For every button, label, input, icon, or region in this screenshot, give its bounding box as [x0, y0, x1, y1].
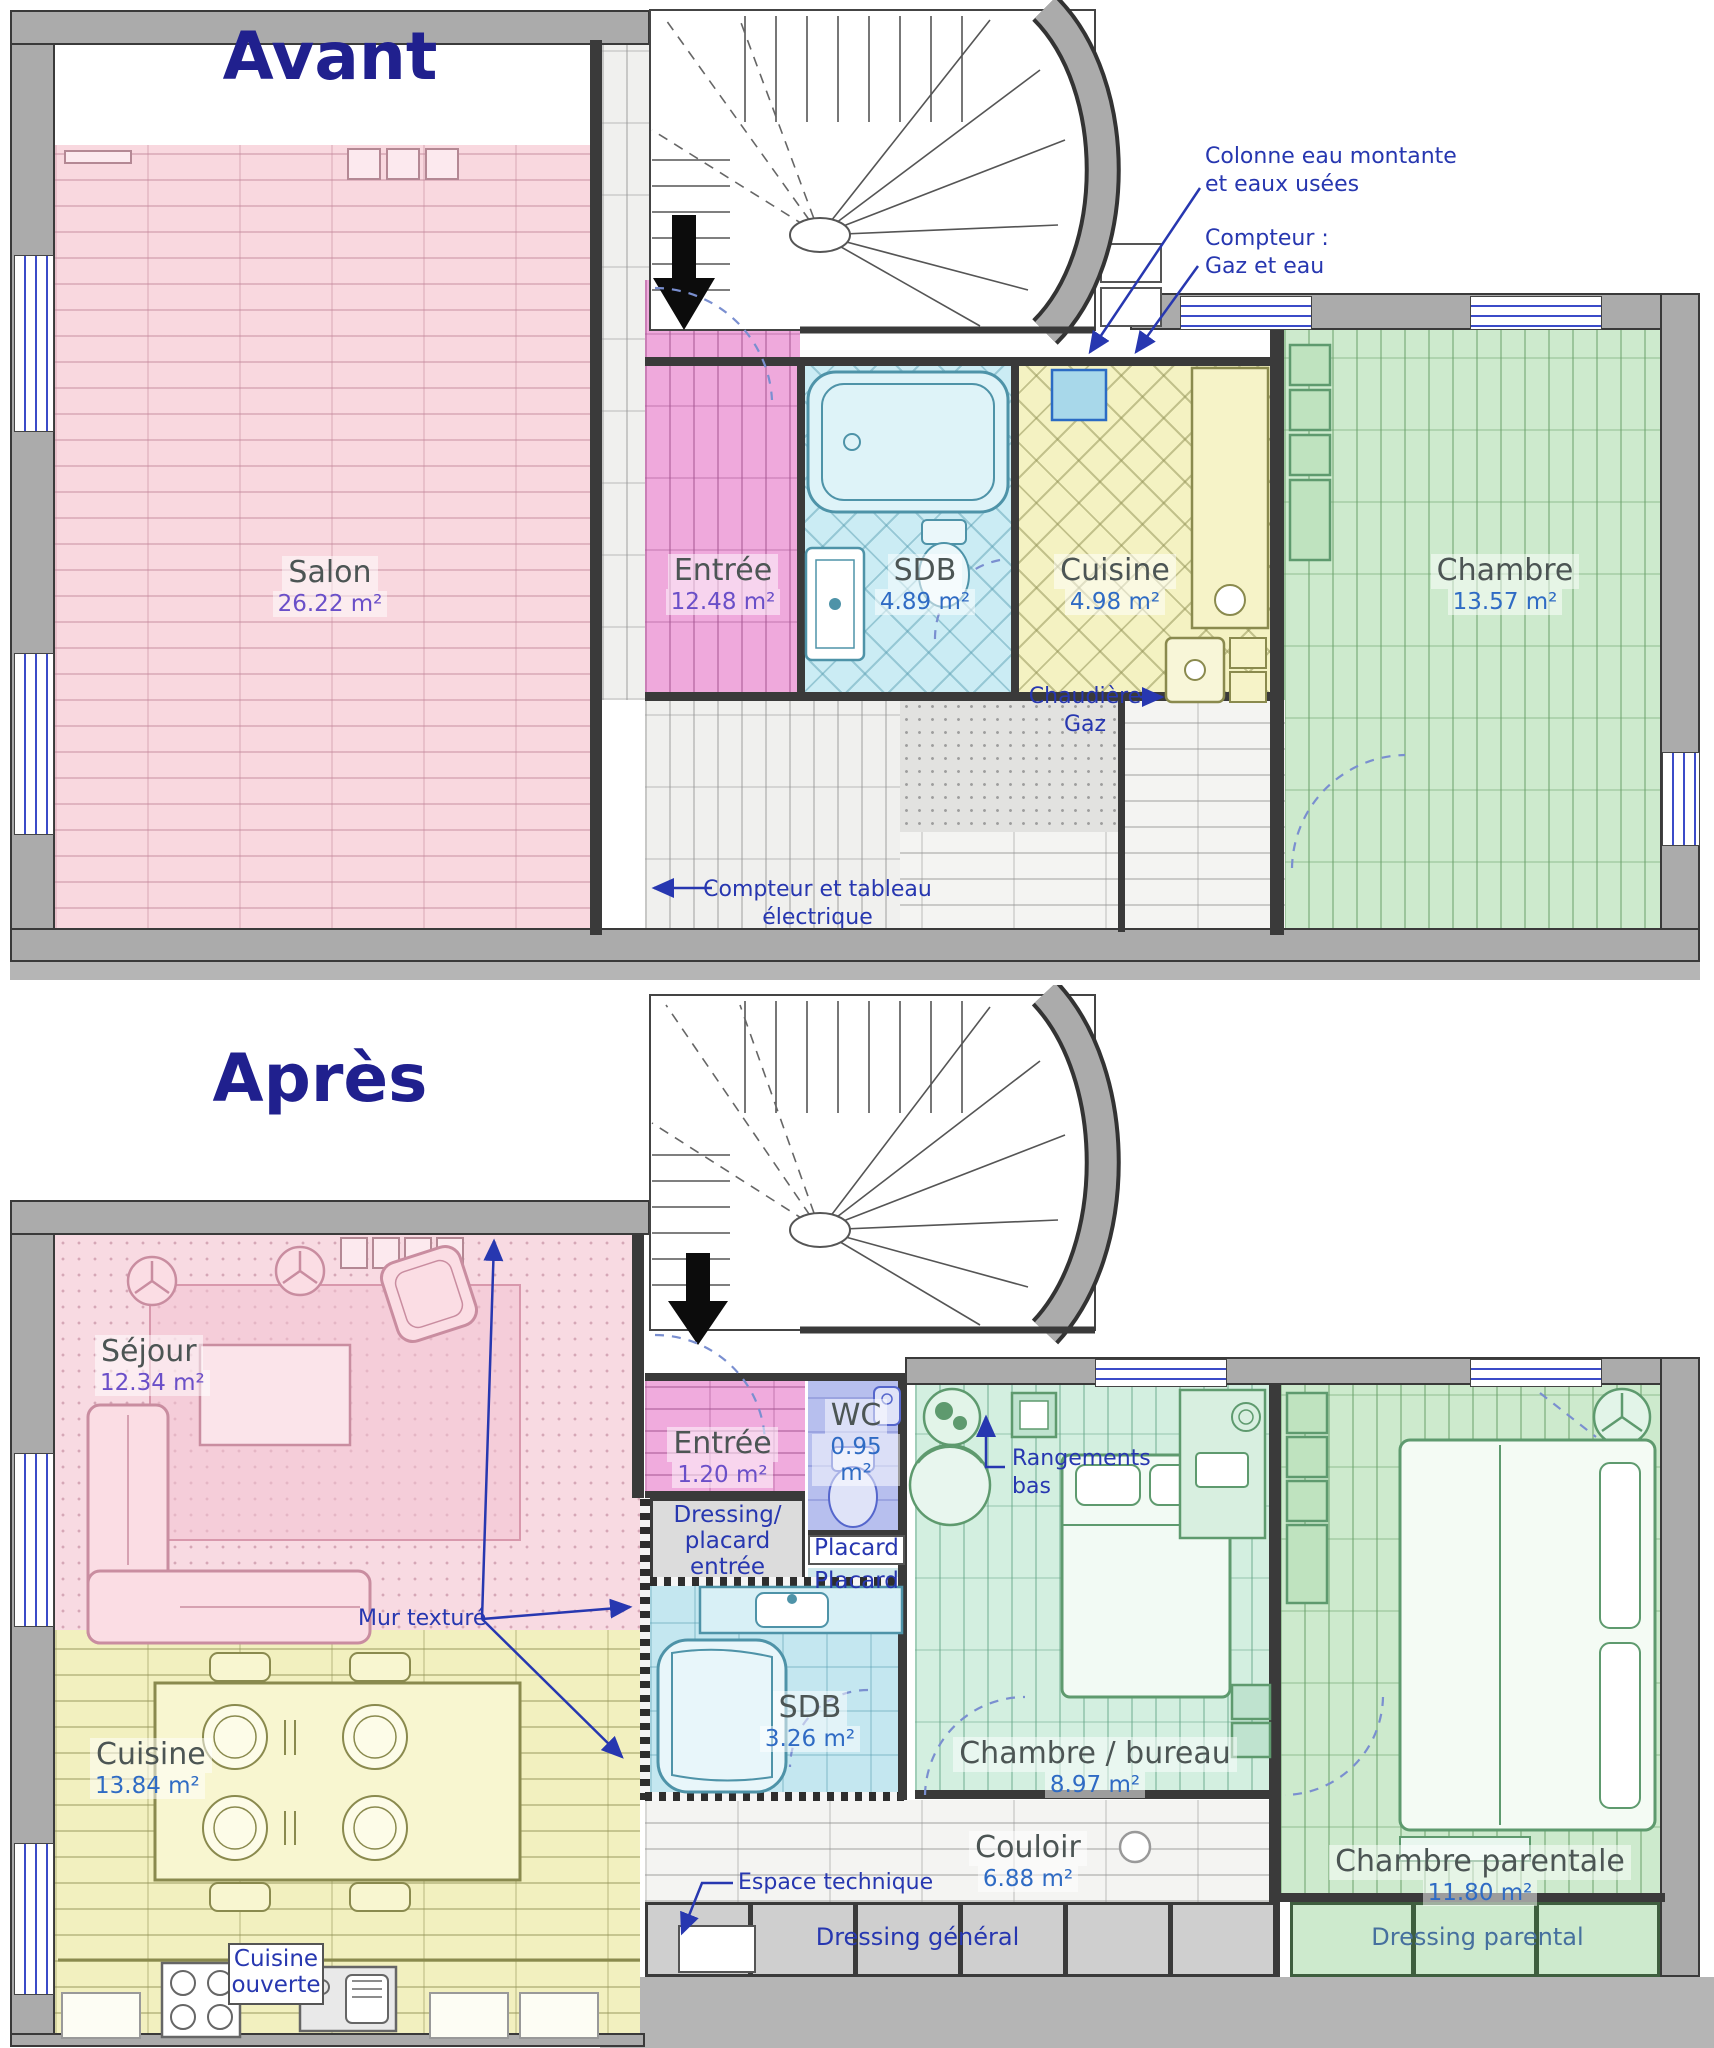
radiator-salon-1 [347, 148, 381, 180]
cuisine-ouverte-label: Cuisine ouverte [228, 1943, 324, 2005]
cuisine-avant-area: 4.98 m² [1065, 589, 1165, 615]
avant-plan: Avant Salon 26.22 m² Entrée 12.48 m² SDB… [0, 0, 1714, 985]
room-cuisine-apres [55, 1630, 640, 2040]
entree-apres-area: 1.20 m² [672, 1462, 772, 1488]
label-sdb-apres: SDB 3.26 m² [745, 1691, 875, 1752]
annotation-rangements-bas: Rangements bas [1012, 1445, 1151, 1500]
sejour-area: 12.34 m² [95, 1370, 210, 1396]
couloir-name: Couloir [969, 1831, 1087, 1866]
room-entree-avant [645, 280, 800, 695]
floorplan-page: Avant Salon 26.22 m² Entrée 12.48 m² SDB… [0, 0, 1714, 2048]
espace-technique-box [678, 1925, 756, 1973]
wall-sdb-cuisine [1011, 365, 1019, 695]
stairwell-apres [650, 993, 1103, 1332]
radiator-sejour-4 [436, 1237, 464, 1269]
label-cuisine-avant: Cuisine 4.98 m² [1035, 554, 1195, 615]
room-cuisine-avant [1015, 365, 1270, 695]
label-entree-avant: Entrée 12.48 m² [658, 554, 788, 615]
label-couloir: Couloir 6.88 m² [948, 1831, 1108, 1892]
room-sdb-avant [800, 365, 1015, 695]
salon-name: Salon [282, 556, 377, 591]
room-sejour [55, 1235, 640, 1630]
wall-right-apres [1660, 1357, 1700, 1977]
couloir-area: 6.88 m² [978, 1866, 1078, 1892]
meter-box-1 [1100, 243, 1162, 283]
placard-2-label: Placard [808, 1569, 905, 1595]
room-chambre-avant [1284, 330, 1662, 935]
palier-strip [602, 40, 650, 700]
label-wc: WC 0.95 m² [812, 1399, 900, 1486]
room-salon [55, 145, 590, 935]
chambre-avant-area: 13.57 m² [1448, 589, 1563, 615]
label-cuisine-apres: Cuisine 13.84 m² [90, 1738, 290, 1799]
wall-entree-sdb [797, 365, 805, 695]
label-entree-apres: Entrée 1.20 m² [655, 1427, 790, 1488]
cuisine-apres-area: 13.84 m² [90, 1773, 205, 1799]
radiator-sejour-3 [404, 1237, 432, 1269]
apres-title: Après [140, 1040, 500, 1117]
wc-name: WC [825, 1399, 888, 1434]
textured-wall-left-column [640, 1498, 650, 1800]
avant-title: Avant [150, 18, 510, 95]
window-salon-left-2 [14, 653, 54, 835]
label-salon: Salon 26.22 m² [235, 556, 425, 617]
sdb-apres-area: 3.26 m² [760, 1726, 860, 1752]
chambre-parentale-area: 11.80 m² [1423, 1880, 1538, 1906]
annotation-compteur-gaz-eau: Compteur : Gaz et eau [1205, 225, 1329, 280]
label-sejour: Séjour 12.34 m² [95, 1335, 295, 1396]
sdb-avant-area: 4.89 m² [875, 589, 975, 615]
annotation-colonne: Colonne eau montante et eaux usées [1205, 143, 1457, 198]
window-cuisine-top [1180, 296, 1312, 330]
wall-cuisine-chambre [1270, 330, 1284, 935]
chambre-parentale-name: Chambre parentale [1329, 1845, 1631, 1880]
annotation-compteur-elec: Compteur et tableau électrique [700, 876, 935, 931]
radiator-sejour-1 [340, 1237, 368, 1269]
chambre-avant-name: Chambre [1431, 554, 1580, 589]
radiator-salon-bar [64, 150, 132, 164]
window-chambre-right [1662, 752, 1700, 846]
window-parentale-top [1470, 1359, 1602, 1387]
annotation-chaudiere: Chaudière Gaz [1025, 683, 1145, 738]
entry-arrow-apres [668, 1253, 728, 1345]
wall-right [1660, 293, 1700, 960]
sdb-apres-name: SDB [773, 1691, 848, 1726]
window-salon-left-1 [14, 255, 54, 432]
wall-rooms-top [645, 357, 1272, 366]
wall-bottom-cuisine [10, 2033, 645, 2047]
radiator-sejour-2 [372, 1237, 400, 1269]
window-chambre-top [1470, 296, 1602, 330]
entree-apres-name: Entrée [667, 1427, 777, 1462]
wall-bottom [10, 928, 1700, 962]
entree-avant-area: 12.48 m² [666, 589, 781, 615]
radiator-salon-2 [386, 148, 420, 180]
annotation-espace-technique: Espace technique [738, 1869, 933, 1897]
placard-1-label: Placard [808, 1536, 905, 1562]
dressing-general-label: Dressing général [800, 1923, 1035, 1951]
ground-shadow-apres [600, 1977, 1714, 2048]
wall-entree-dressing [645, 1491, 805, 1499]
dressing-placard-entree-label: Dressing/ placard entrée [652, 1503, 803, 1580]
salon-area: 26.22 m² [273, 591, 388, 617]
textured-wall-sdb-bottom [645, 1792, 907, 1801]
window-bureau-top [1095, 1359, 1227, 1387]
wall-bureau-parentale [1269, 1385, 1281, 1902]
dressing-parental-label: Dressing parental [1350, 1923, 1605, 1951]
window-sejour-left [14, 1453, 54, 1627]
window-cuisine-left [14, 1843, 54, 1995]
chambre-bureau-name: Chambre / bureau [953, 1737, 1237, 1772]
wall-rooms-bottom [645, 692, 1272, 701]
cuisine-avant-name: Cuisine [1054, 554, 1176, 589]
sejour-name: Séjour [95, 1335, 203, 1370]
room-chambre-parentale [1280, 1385, 1665, 1900]
radiator-salon-3 [425, 148, 459, 180]
wall-salon-right [590, 40, 602, 935]
entree-avant-name: Entrée [668, 554, 778, 589]
label-chambre-parentale: Chambre parentale 11.80 m² [1320, 1845, 1640, 1906]
label-chambre-avant: Chambre 13.57 m² [1410, 554, 1600, 615]
chambre-bureau-area: 8.97 m² [1045, 1772, 1145, 1798]
meter-box-2 [1100, 287, 1162, 327]
wc-area: 0.95 m² [812, 1434, 900, 1487]
wall-top-sejour [10, 1200, 650, 1235]
wall-entree-top [645, 1373, 905, 1381]
cuisine-apres-name: Cuisine [90, 1738, 212, 1773]
label-chambre-bureau: Chambre / bureau 8.97 m² [930, 1737, 1260, 1798]
apres-plan: Après Séjour 12.34 m² Entrée 1.20 m² WC … [0, 985, 1714, 2048]
annotation-mur-texture: Mur texturé [358, 1605, 486, 1633]
wall-sejour-entree [632, 1235, 644, 1498]
sdb-avant-name: SDB [888, 554, 963, 589]
label-sdb-avant: SDB 4.89 m² [855, 554, 995, 615]
